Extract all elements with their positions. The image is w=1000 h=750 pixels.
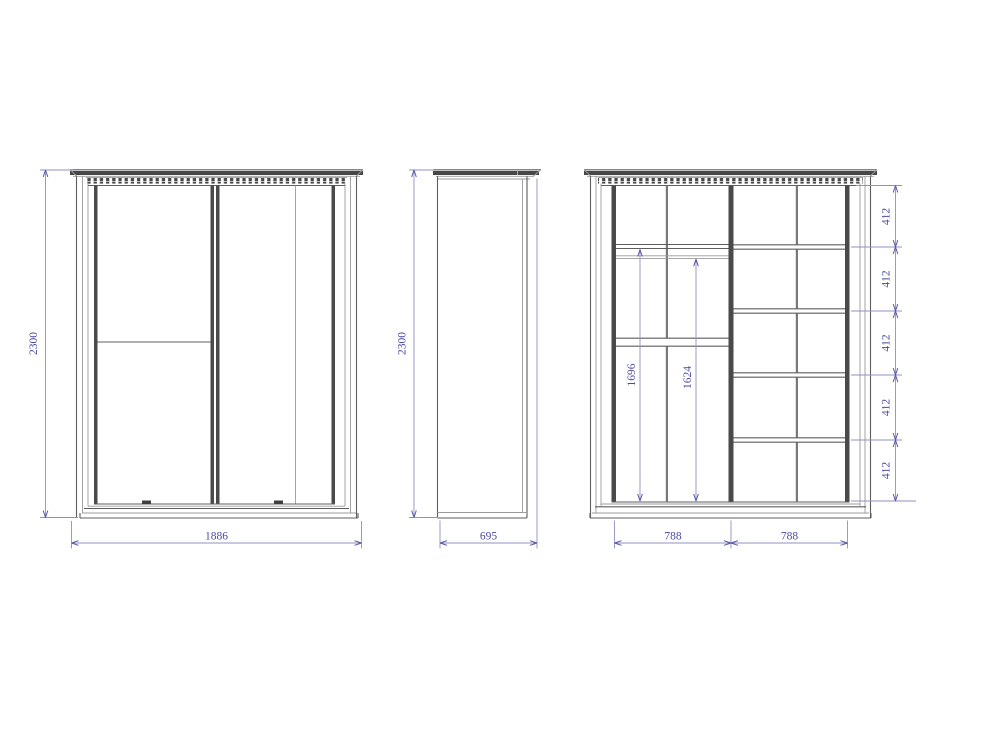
left-door-right-stile [211, 186, 215, 505]
left-door-left-stile [94, 186, 98, 505]
front-crown-molding [70, 170, 363, 184]
drawing-canvas: 2300 1886 [0, 0, 1000, 750]
hanging-height-right-label: 1624 [682, 366, 694, 389]
shelf-gap-label-5: 412 [881, 462, 893, 480]
front-width-label: 1886 [205, 531, 228, 543]
interior-center-partition [729, 186, 734, 503]
shelf-gap-label-3: 412 [881, 334, 893, 352]
right-door-roller [274, 501, 283, 505]
section-width-label-left: 788 [664, 531, 682, 543]
right-door-left-stile [216, 186, 220, 505]
front-height-label: 2300 [28, 332, 40, 355]
hanging-height-left-label: 1696 [626, 363, 638, 386]
right-door-right-stile [332, 186, 336, 505]
page-background [0, 0, 1000, 750]
shelf-gap-label-2: 412 [881, 270, 893, 288]
left-door-roller [142, 501, 151, 505]
front-dentil-band [86, 178, 347, 184]
hanging-section-divider-upper [666, 186, 668, 339]
interior-right-wall [845, 186, 850, 503]
interior-left-wall [612, 186, 617, 503]
shelf-gap-label-1: 412 [881, 208, 893, 226]
side-depth-label: 695 [480, 531, 498, 543]
interior-crown-molding [584, 170, 877, 184]
shelf-gap-label-4: 412 [881, 399, 893, 417]
hanging-section-divider-lower [666, 347, 668, 503]
side-height-label: 2300 [397, 332, 409, 355]
section-width-label-right: 788 [781, 531, 799, 543]
interior-dentil-band [598, 178, 863, 184]
